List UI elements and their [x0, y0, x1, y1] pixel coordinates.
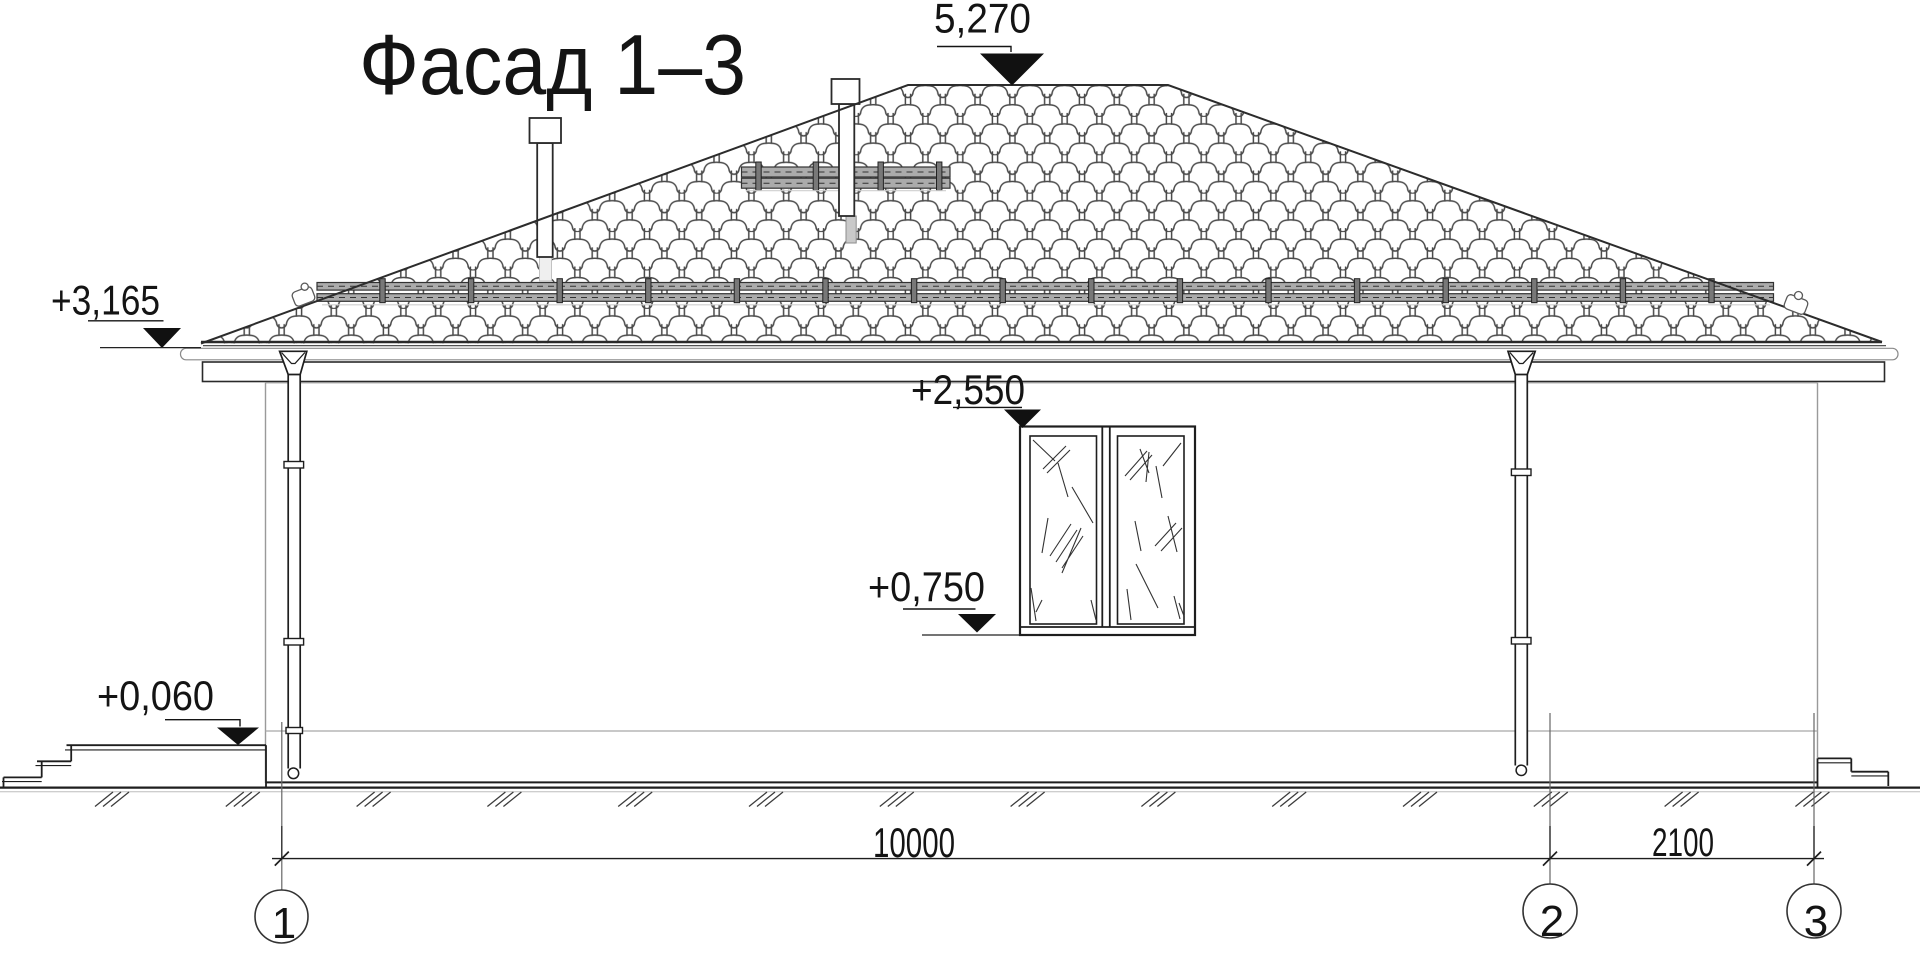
svg-text:5,270: 5,270 — [934, 0, 1031, 42]
svg-text:1: 1 — [272, 899, 296, 948]
svg-text:10000: 10000 — [873, 819, 955, 866]
svg-text:Фасад 1–3: Фасад 1–3 — [359, 18, 746, 113]
svg-text:2100: 2100 — [1652, 821, 1714, 865]
svg-text:+3,165: +3,165 — [51, 277, 160, 324]
svg-text:+0,750: +0,750 — [868, 563, 985, 610]
svg-text:+2,550: +2,550 — [911, 366, 1025, 413]
svg-text:3: 3 — [1804, 897, 1828, 946]
svg-text:+0,060: +0,060 — [97, 672, 214, 719]
svg-text:2: 2 — [1540, 897, 1564, 946]
